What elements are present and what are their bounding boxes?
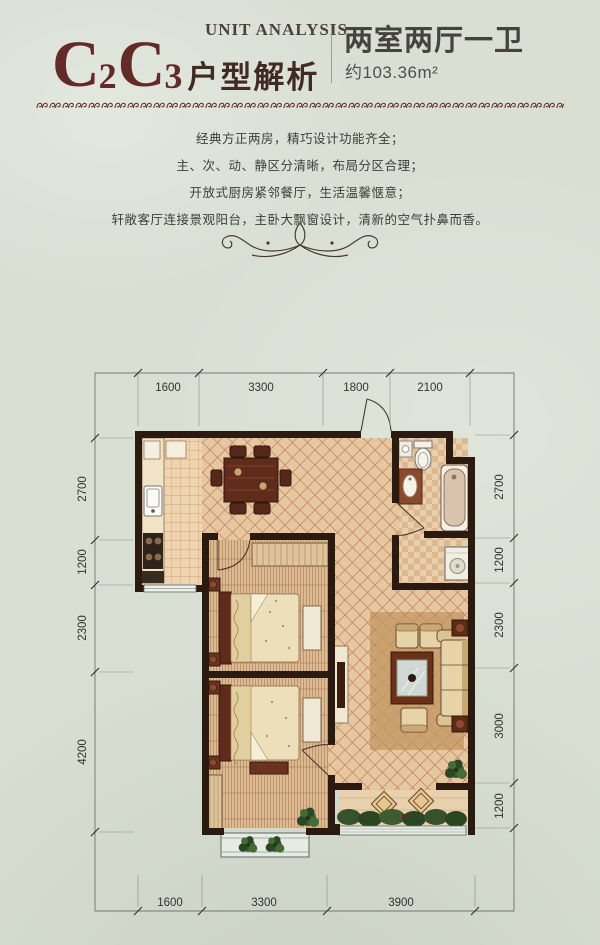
dim-label: 2100 (417, 382, 443, 394)
armchair (396, 624, 418, 648)
side-table (452, 716, 468, 732)
bedroom-floor (209, 540, 328, 828)
washing-machine (445, 547, 470, 580)
kitchen-window (144, 585, 196, 592)
dim-label: 2300 (77, 615, 89, 641)
dim-label: 3000 (494, 713, 506, 739)
toilet (414, 441, 432, 470)
dim-label: 1600 (157, 897, 183, 909)
dim-label: 3300 (248, 382, 274, 394)
stove (143, 533, 163, 569)
bathtub (441, 465, 468, 531)
desk (303, 606, 321, 650)
armchair (401, 708, 427, 732)
coffee-table (391, 652, 433, 704)
sofa (437, 630, 469, 726)
dim-label: 4200 (77, 739, 89, 765)
vanity-sink (399, 469, 422, 504)
dim-label: 3300 (251, 897, 277, 909)
desk (303, 698, 321, 742)
bed-bench (250, 762, 288, 774)
dim-label: 2300 (494, 612, 506, 638)
kitchen-sink (144, 486, 162, 516)
dim-label: 1800 (343, 382, 369, 394)
floor-plan: 1600 3300 1800 2100 2700 1200 2300 4200 … (0, 0, 600, 945)
tv-cabinet (334, 646, 348, 723)
dim-label: 2700 (494, 474, 506, 500)
brochure-page: C 2 C 3 户型解析 UNIT ANALYSIS 两室两厅一卫 约103.3… (0, 0, 600, 945)
side-table (452, 620, 468, 636)
wardrobe (252, 543, 328, 566)
dim-label: 2700 (77, 476, 89, 502)
dim-label: 1200 (494, 793, 506, 819)
bed (219, 685, 299, 764)
hand-basin (399, 441, 412, 457)
balcony-railing (338, 826, 466, 835)
dim-label: 1200 (494, 547, 506, 573)
bed (219, 592, 299, 664)
kitchen-cabinet (166, 441, 186, 458)
bay-window (221, 833, 309, 857)
dining-table (224, 458, 278, 502)
dim-label: 1200 (77, 549, 89, 575)
entry-door (361, 399, 391, 431)
dim-label: 1600 (155, 382, 181, 394)
dim-label: 3900 (388, 897, 414, 909)
kitchen-base-cabinet (142, 571, 164, 583)
kitchen-cabinet (144, 441, 160, 459)
